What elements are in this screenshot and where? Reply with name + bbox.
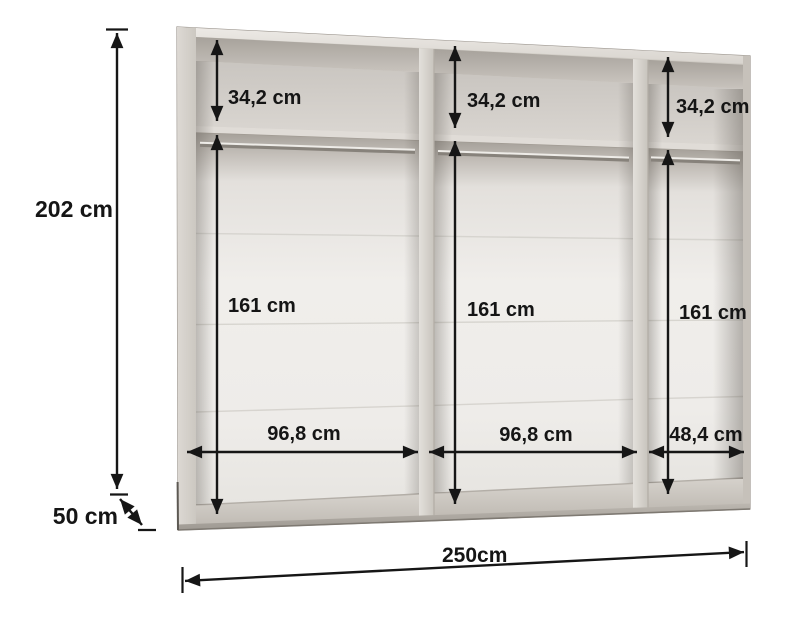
section-2-top-height-label: 34,2 cm (467, 90, 540, 112)
section-1-right-shading (404, 72, 419, 494)
depth-dimension-arrow (120, 499, 142, 525)
diagram-canvas: 202 cm 50 cm 250cm 34,2 cm 34,2 cm 34,2 … (0, 0, 788, 619)
section-1-left-shading (196, 61, 214, 505)
total-width-dimension-label: 250cm (442, 544, 507, 567)
section-1-back-panel (196, 133, 419, 505)
section-2-right-shading (618, 83, 633, 483)
divider-2-edge (633, 59, 648, 508)
section-1-width-label: 96,8 cm (267, 423, 340, 445)
section-3-right-shading (713, 89, 743, 479)
section-2-left-shading (434, 73, 452, 493)
section-2-width-label: 96,8 cm (499, 424, 572, 446)
divider-1-edge (419, 48, 434, 516)
depth-dimension-label: 50 cm (53, 503, 118, 529)
wardrobe-dimension-diagram: 202 cm 50 cm 250cm 34,2 cm 34,2 cm 34,2 … (0, 0, 788, 619)
section-3-width-label: 48,4 cm (669, 424, 742, 446)
section-1-top-height-label: 34,2 cm (228, 87, 301, 109)
section-2-hanging-height-label: 161 cm (467, 299, 535, 321)
section-3-ceiling (648, 60, 743, 89)
right-wall-edge (743, 56, 750, 509)
section-3-left-shading (648, 84, 662, 483)
section-3-top-height-label: 34,2 cm (676, 96, 749, 118)
height-dimension-label: 202 cm (35, 196, 113, 222)
left-wall-edge (177, 27, 196, 530)
section-1-hanging-height-label: 161 cm (228, 295, 296, 317)
section-3-hanging-height-label: 161 cm (679, 302, 747, 324)
